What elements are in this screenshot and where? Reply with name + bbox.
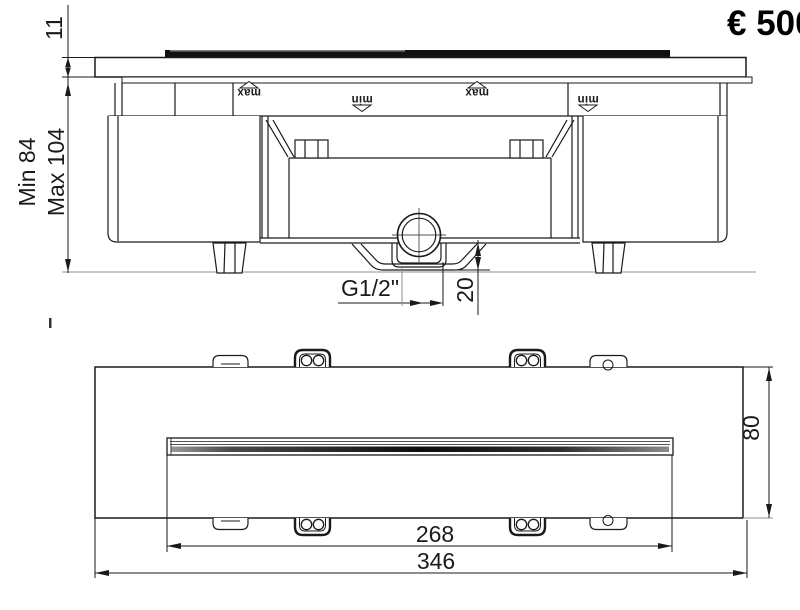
fastener-clip bbox=[510, 518, 545, 535]
fastener-clip bbox=[295, 518, 330, 535]
section-tick bbox=[49, 318, 52, 328]
left-body-box bbox=[108, 116, 260, 242]
dim-label-install-depth-min: Min 84 bbox=[15, 112, 41, 232]
drawing-sheet: € 500 11 Min 84 Max 104 max min max min … bbox=[0, 0, 800, 610]
mounting-plate bbox=[95, 58, 746, 78]
price-label: € 500 bbox=[727, 4, 800, 44]
plan-view-drawing bbox=[95, 350, 743, 535]
level-marker-max-2: max bbox=[460, 85, 494, 99]
mounting-tab bbox=[213, 356, 248, 368]
dim-label-overall-depth: 80 bbox=[739, 398, 765, 458]
level-marker-triangles bbox=[240, 82, 597, 112]
dim-label-install-depth-max: Max 104 bbox=[44, 112, 70, 232]
left-leg bbox=[213, 243, 246, 273]
level-marker-min-2: min bbox=[571, 92, 605, 106]
dim-label-outlet-thread: G1/2" bbox=[330, 276, 410, 300]
level-marker-min-1: min bbox=[345, 92, 379, 106]
dim-label-slot-length: 268 bbox=[390, 522, 480, 546]
fastener-clip bbox=[510, 350, 545, 367]
hanger-band bbox=[108, 83, 727, 116]
right-body-box bbox=[583, 116, 727, 242]
mounting-tab bbox=[213, 518, 248, 530]
technical-drawing-canvas bbox=[0, 0, 800, 610]
dim-label-overall-length: 346 bbox=[391, 549, 481, 573]
plate-lip bbox=[122, 77, 752, 83]
tank-clip-right bbox=[510, 140, 543, 158]
front-view-drawing bbox=[62, 50, 756, 273]
dim-label-outlet-offset: 20 bbox=[453, 260, 479, 320]
fastener-clip bbox=[295, 350, 330, 367]
spout-slot-plan bbox=[167, 438, 673, 455]
dim-label-plate-thickness: 11 bbox=[42, 0, 68, 58]
right-leg bbox=[592, 243, 625, 273]
level-marker-max-1: max bbox=[232, 85, 266, 99]
tank-clip-left bbox=[295, 140, 328, 158]
